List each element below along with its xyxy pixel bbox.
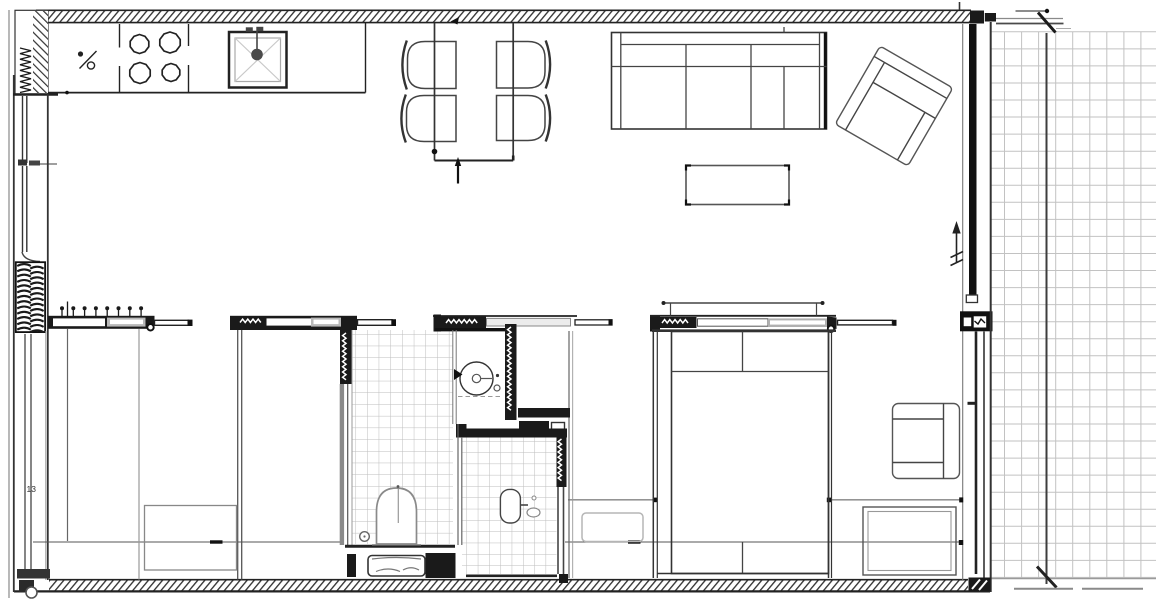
- svg-text:13: 13: [27, 484, 37, 494]
